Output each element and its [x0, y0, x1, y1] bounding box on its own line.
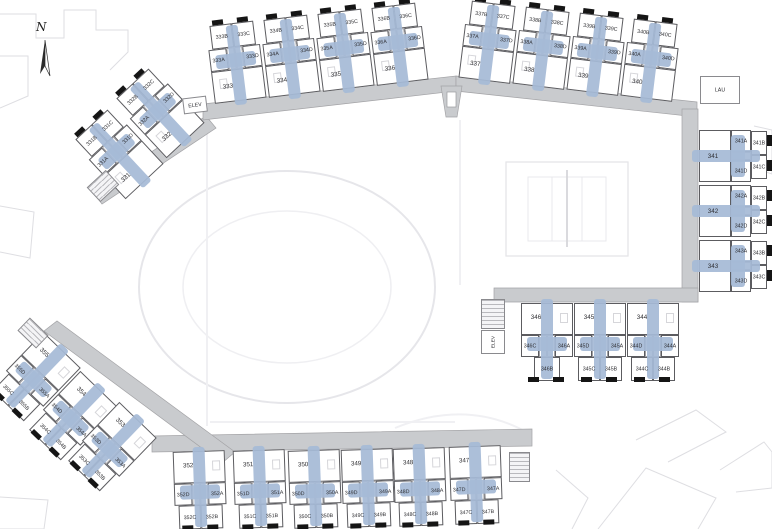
building-351[interactable]: 351C351B351351D351A	[232, 449, 289, 529]
unit-label: 347D	[453, 486, 466, 492]
unit-label: 351C	[244, 513, 257, 519]
fixture	[272, 459, 280, 469]
unit-label: 344C	[636, 366, 649, 372]
unit-label: 349A	[379, 488, 392, 494]
building-340[interactable]: 340B340C340A340D340	[619, 18, 682, 102]
unit-label: 346	[531, 313, 541, 320]
unit-label: 342	[708, 207, 718, 214]
roof-mark	[207, 524, 218, 529]
unit-label: 350D	[292, 490, 305, 496]
unit-label: 337	[470, 59, 481, 67]
building-341[interactable]: 341341A341D341B341C	[698, 129, 768, 183]
roof-mark	[767, 215, 772, 226]
unit-label: 340	[632, 77, 643, 85]
unit-label: 336	[384, 64, 395, 72]
fixture	[212, 460, 220, 470]
unit-label: 350A	[326, 489, 339, 495]
unit-label: 349B	[374, 511, 387, 517]
unit-label: 347C	[460, 509, 473, 515]
laundry-label: LAU	[715, 87, 725, 93]
building-348[interactable]: 348C348B348348D348A	[392, 447, 449, 527]
unit-label: 352A	[211, 490, 224, 496]
building-335[interactable]: 335B335C335A335D335	[312, 8, 375, 92]
unit-label: 348D	[397, 488, 410, 494]
unit-label: 342D	[735, 223, 748, 229]
fixture	[327, 459, 335, 469]
laundry-room: LAU	[700, 76, 740, 104]
unit-label: 345A	[611, 343, 623, 349]
unit-label: 347	[459, 457, 470, 464]
roof-mark	[267, 523, 278, 528]
unit-label: 344D	[630, 343, 643, 349]
fixture	[488, 455, 496, 465]
unit-label: 350B	[321, 512, 334, 518]
stair-core	[692, 260, 760, 272]
roof-mark	[581, 377, 592, 382]
unit-label: 344B	[658, 366, 670, 372]
fixture	[432, 457, 440, 467]
unit-label: 346C	[524, 343, 537, 349]
building-350[interactable]: 350C350B350350D350A	[287, 449, 344, 529]
unit-label: 351B	[266, 512, 279, 518]
roof-mark	[402, 522, 413, 527]
unit-label: 345B	[605, 366, 617, 372]
unit-label: 341A	[735, 138, 747, 144]
building-344[interactable]: 344C344B344344D344A	[626, 303, 680, 381]
unit-label: 344A	[664, 343, 676, 349]
roof-mark	[767, 270, 772, 281]
fixture	[613, 313, 621, 323]
unit-label: 342A	[735, 193, 747, 199]
unit-label: 351A	[271, 489, 284, 495]
building-333[interactable]: 333B333C333A333D333	[204, 20, 267, 104]
unit-label: 333	[222, 82, 233, 90]
roof-mark	[350, 523, 361, 528]
fixture	[560, 313, 568, 323]
unit-label: 345D	[577, 343, 590, 349]
unit-label: 352D	[177, 491, 190, 497]
roof-mark	[375, 522, 386, 527]
compass: N	[36, 20, 47, 34]
site-plan: N 331B331C331A331D331332B332C332A332D332…	[0, 0, 772, 529]
building-343[interactable]: 343343A343D343B343C	[698, 239, 768, 293]
roof-mark	[659, 377, 670, 382]
unit-label: 341D	[735, 168, 748, 174]
unit-label: 350C	[299, 513, 312, 519]
building-342[interactable]: 342342A342D342B342C	[698, 184, 768, 238]
unit-label: 345	[584, 313, 594, 320]
building-349[interactable]: 349C349B349349D349A	[340, 448, 397, 528]
building-347[interactable]: 347C347B347347D347A	[448, 445, 505, 525]
unit-label: 343B	[753, 250, 765, 256]
unit-label: 342B	[753, 195, 765, 201]
unit-label: 343D	[735, 278, 748, 284]
compass-label: N	[36, 20, 47, 34]
unit-label: 334	[276, 76, 287, 84]
unit-label: 341	[708, 152, 718, 159]
elevator-label: ELEV	[490, 336, 495, 348]
roof-mark	[483, 519, 494, 524]
roof-mark	[767, 190, 772, 201]
unit-label: 339	[578, 71, 589, 79]
unit-label: 347A	[487, 485, 500, 491]
unit-label: 335	[330, 70, 341, 78]
unit-label: 343C	[753, 274, 766, 280]
building-339[interactable]: 339B339C339A339D339	[565, 12, 628, 96]
building-337[interactable]: 337B337C337A337D337	[457, 0, 520, 84]
unit-label: 352B	[206, 513, 219, 519]
unit-label: 348A	[431, 487, 444, 493]
unit-label: 338	[524, 65, 535, 73]
roof-mark	[297, 524, 308, 529]
stair-core	[692, 205, 760, 217]
fixture	[666, 313, 674, 323]
unit-label: 351D	[237, 490, 250, 496]
roof-mark	[634, 377, 645, 382]
unit-label: 344	[637, 313, 647, 320]
unit-label: 342C	[753, 219, 766, 225]
roof-mark	[767, 245, 772, 256]
building-338[interactable]: 338B338C338A338D338	[511, 6, 574, 90]
elevator-room: ELEV	[481, 330, 505, 354]
roof-mark	[182, 525, 193, 529]
roof-mark	[606, 377, 617, 382]
unit-label: 349C	[352, 512, 365, 518]
unit-label: 348B	[426, 510, 439, 516]
roof-mark	[528, 377, 539, 382]
stair-room	[509, 452, 530, 482]
roof-mark	[242, 524, 253, 529]
buildings-layer: 331B331C331A331D331332B332C332A332D33233…	[0, 0, 772, 529]
roof-mark	[458, 520, 469, 525]
roof-mark	[767, 160, 772, 171]
building-345[interactable]: 345C345B345345D345A	[573, 303, 627, 381]
building-352[interactable]: 352C352B352352D352A	[172, 450, 229, 529]
unit-label: 347B	[482, 508, 495, 514]
building-334[interactable]: 334B334C334A334D334	[258, 14, 321, 98]
elevator-room: ELEV	[182, 96, 208, 115]
roof-mark	[767, 135, 772, 146]
unit-label: 341C	[753, 164, 766, 170]
unit-label: 346B	[541, 366, 553, 372]
unit-label: 350	[298, 461, 309, 468]
building-336[interactable]: 336B336C336A336D336	[366, 2, 429, 86]
unit-label: 351	[243, 461, 254, 468]
unit-label: 346A	[558, 343, 570, 349]
unit-label: 348C	[404, 511, 417, 517]
fixture	[380, 458, 388, 468]
roof-mark	[427, 521, 438, 526]
unit-label: 349	[351, 460, 362, 467]
roof-mark	[322, 523, 333, 528]
unit-label: 352	[183, 462, 194, 469]
unit-label: 343	[708, 262, 718, 269]
elevator-label: ELEV	[188, 101, 202, 109]
unit-label: 349D	[345, 489, 358, 495]
unit-label: 352C	[184, 514, 197, 520]
stair-core	[692, 150, 760, 162]
unit-label: 343A	[735, 248, 747, 254]
unit-label: 348	[403, 459, 414, 466]
unit-label: 345C	[583, 366, 596, 372]
stair-room	[481, 299, 505, 329]
roof-mark	[553, 377, 564, 382]
unit-label: 341B	[753, 140, 765, 146]
building-346[interactable]: 346B346346C346A	[520, 303, 574, 381]
